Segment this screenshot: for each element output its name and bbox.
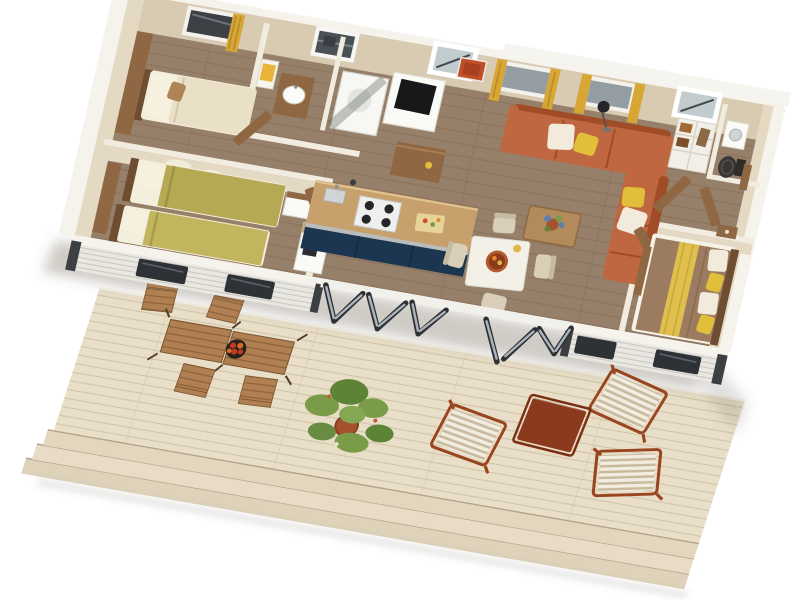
cushion-white (547, 123, 575, 150)
dining-chair (492, 213, 516, 234)
dining-chair (533, 254, 557, 280)
pillow (707, 249, 729, 272)
wall-art-orange (457, 57, 487, 81)
pillow (137, 164, 163, 190)
cushion-yellow (621, 187, 645, 208)
wall-art-small (323, 36, 337, 48)
floor-plan-canvas (0, 0, 800, 600)
pillow (697, 292, 719, 316)
dining-table (465, 236, 530, 291)
bistro-chair (238, 376, 277, 408)
floor-plan-render (0, 0, 800, 600)
cutting-board (415, 213, 446, 234)
